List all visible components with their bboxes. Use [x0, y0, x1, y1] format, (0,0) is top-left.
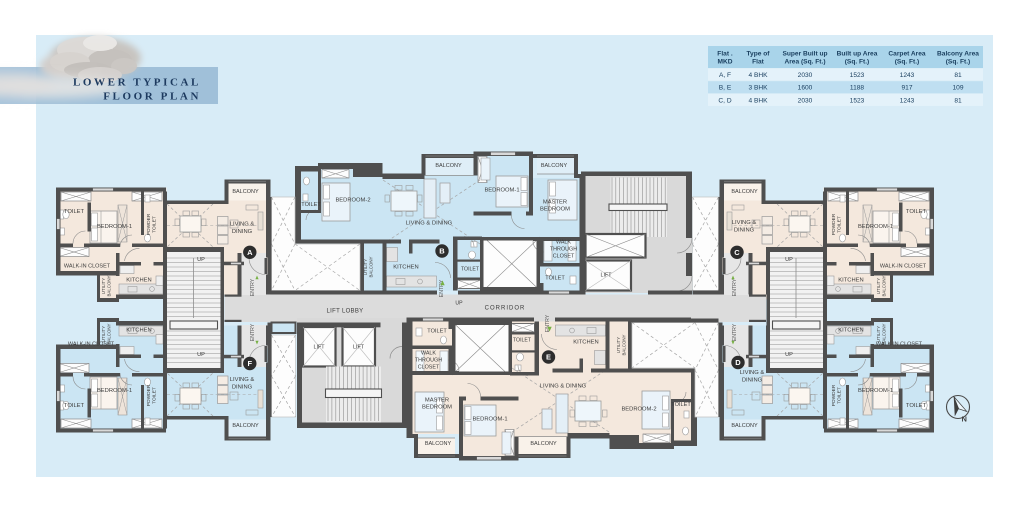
svg-text:TOILET: TOILET — [906, 403, 927, 409]
svg-text:(Sq. Ft.): (Sq. Ft.) — [946, 59, 971, 66]
svg-text:KITCHEN: KITCHEN — [838, 278, 863, 284]
svg-text:BALCONY: BALCONY — [622, 334, 627, 355]
svg-text:BALCONY: BALCONY — [369, 256, 374, 277]
svg-text:BEDROOM-2: BEDROOM-2 — [621, 407, 656, 413]
svg-text:A, F: A, F — [719, 72, 731, 79]
svg-text:WALK: WALK — [556, 240, 571, 246]
svg-text:LIVING &: LIVING & — [732, 220, 757, 226]
svg-text:109: 109 — [952, 85, 963, 92]
svg-text:BEDROOM-2: BEDROOM-2 — [335, 198, 370, 204]
svg-text:LIVING &: LIVING & — [230, 222, 255, 228]
svg-text:MASTER: MASTER — [425, 398, 449, 404]
svg-text:TOILET: TOILET — [301, 202, 321, 208]
svg-text:WALK: WALK — [421, 351, 436, 357]
svg-text:POWDER: POWDER — [831, 213, 837, 235]
svg-text:BALCONY: BALCONY — [882, 323, 887, 344]
svg-text:BALCONY: BALCONY — [107, 323, 112, 344]
svg-text:UP: UP — [197, 352, 205, 358]
svg-text:TOILET: TOILET — [152, 387, 158, 404]
svg-text:BALCONY: BALCONY — [731, 189, 758, 195]
svg-text:BEDROOM: BEDROOM — [540, 207, 570, 213]
svg-text:BALCONY: BALCONY — [232, 423, 259, 429]
svg-text:BEDROOM-1: BEDROOM-1 — [484, 188, 519, 194]
svg-text:Type of: Type of — [747, 51, 771, 58]
svg-text:1243: 1243 — [900, 97, 915, 104]
svg-text:Super Built up: Super Built up — [782, 51, 827, 58]
svg-text:TOILET: TOILET — [837, 387, 843, 404]
svg-text:LIVING &: LIVING & — [740, 370, 765, 376]
svg-text:TOILET: TOILET — [906, 209, 927, 215]
svg-text:LIFT: LIFT — [353, 345, 365, 351]
svg-text:ENTRY: ENTRY — [732, 278, 738, 296]
svg-text:TOILET: TOILET — [545, 276, 565, 282]
svg-text:4 BHK: 4 BHK — [748, 72, 768, 79]
svg-text:TOILET: TOILET — [837, 216, 843, 233]
svg-text:UP: UP — [197, 257, 205, 263]
svg-text:BEDROOM: BEDROOM — [422, 405, 452, 411]
svg-text:81: 81 — [954, 97, 962, 104]
svg-text:B, E: B, E — [719, 85, 732, 92]
svg-text:F: F — [248, 359, 253, 368]
svg-text:TOILET: TOILET — [427, 329, 447, 335]
svg-text:BEDROOM-1: BEDROOM-1 — [97, 224, 132, 230]
svg-text:Built up Area: Built up Area — [837, 51, 878, 58]
svg-text:WALK-IN CLOSET: WALK-IN CLOSET — [64, 263, 111, 269]
svg-text:POWDER: POWDER — [146, 213, 152, 235]
svg-text:MASTER: MASTER — [543, 200, 567, 206]
svg-text:TOILET: TOILET — [513, 338, 532, 344]
svg-text:BEDROOM-1: BEDROOM-1 — [97, 388, 132, 394]
svg-text:(Sq. Ft.): (Sq. Ft.) — [845, 59, 870, 66]
svg-text:A: A — [247, 248, 253, 257]
svg-text:UTILITY: UTILITY — [101, 326, 106, 342]
svg-text:4 BHK: 4 BHK — [748, 97, 768, 104]
svg-text:LIFT LOBBY: LIFT LOBBY — [327, 309, 364, 315]
svg-text:POWDER: POWDER — [146, 384, 152, 406]
svg-text:BEDROOM-1: BEDROOM-1 — [472, 417, 507, 423]
svg-text:LIVING & DINING: LIVING & DINING — [406, 221, 453, 227]
svg-text:KITCHEN: KITCHEN — [126, 328, 151, 334]
svg-text:KITCHEN: KITCHEN — [126, 278, 151, 284]
svg-text:DINING: DINING — [734, 227, 755, 233]
svg-text:ENTRY: ENTRY — [732, 323, 738, 341]
svg-text:UTILITY: UTILITY — [363, 259, 368, 275]
svg-text:BALCONY: BALCONY — [541, 163, 568, 169]
svg-text:Carpet Area: Carpet Area — [888, 51, 925, 58]
svg-text:TOILET: TOILET — [64, 403, 85, 409]
svg-text:917: 917 — [901, 85, 912, 92]
svg-text:KITCHEN: KITCHEN — [838, 328, 863, 334]
svg-text:UP: UP — [455, 301, 463, 307]
svg-text:KITCHEN: KITCHEN — [573, 340, 598, 346]
svg-text:LOWER TYPICAL: LOWER TYPICAL — [73, 77, 201, 89]
svg-text:BALCONY: BALCONY — [731, 423, 758, 429]
svg-text:BALCONY: BALCONY — [425, 441, 452, 447]
svg-text:D: D — [735, 358, 741, 367]
svg-text:C: C — [734, 248, 740, 257]
svg-text:UP: UP — [785, 257, 793, 263]
svg-text:2030: 2030 — [798, 97, 813, 104]
svg-text:Balcony Area: Balcony Area — [937, 51, 979, 58]
svg-text:1600: 1600 — [798, 85, 813, 92]
svg-text:ENTRY: ENTRY — [250, 323, 256, 341]
svg-text:DINING: DINING — [232, 385, 253, 391]
svg-text:B: B — [439, 247, 445, 256]
svg-text:TOILET: TOILET — [671, 402, 691, 408]
svg-text:TOILET: TOILET — [152, 216, 158, 233]
svg-text:1523: 1523 — [850, 97, 865, 104]
svg-text:BEDROOM-1: BEDROOM-1 — [858, 224, 893, 230]
svg-text:C, D: C, D — [718, 97, 731, 104]
svg-text:CORRIDOR: CORRIDOR — [485, 306, 526, 312]
svg-text:LIVING &: LIVING & — [230, 377, 255, 383]
svg-text:ENTRY: ENTRY — [250, 278, 256, 296]
svg-text:POWDER: POWDER — [831, 384, 837, 406]
svg-text:WALK-IN CLOSET: WALK-IN CLOSET — [880, 263, 927, 269]
svg-text:(Sq. Ft.): (Sq. Ft.) — [895, 59, 920, 66]
svg-text:1188: 1188 — [850, 85, 865, 92]
svg-text:DINING: DINING — [232, 229, 253, 235]
svg-text:81: 81 — [954, 72, 962, 79]
svg-text:BALCONY: BALCONY — [107, 275, 112, 296]
svg-text:TOILET: TOILET — [64, 209, 85, 215]
svg-text:TOILET: TOILET — [461, 267, 480, 273]
svg-text:E: E — [546, 353, 551, 362]
svg-text:Flat: Flat — [752, 59, 765, 66]
svg-text:LIFT: LIFT — [600, 273, 612, 279]
svg-text:BEDROOM-1: BEDROOM-1 — [858, 388, 893, 394]
svg-text:3 BHK: 3 BHK — [748, 85, 768, 92]
svg-text:THROUGH: THROUGH — [415, 358, 442, 364]
svg-text:LIFT: LIFT — [313, 345, 325, 351]
svg-text:UTILITY: UTILITY — [101, 278, 106, 294]
svg-text:1243: 1243 — [900, 72, 915, 79]
svg-text:BALCONY: BALCONY — [232, 189, 259, 195]
svg-text:CLOSET: CLOSET — [553, 254, 575, 260]
svg-text:Area (Sq. Ft.): Area (Sq. Ft.) — [784, 59, 825, 66]
svg-text:BALCONY: BALCONY — [882, 275, 887, 296]
svg-text:KITCHEN: KITCHEN — [393, 265, 418, 271]
svg-text:DINING: DINING — [742, 377, 763, 383]
svg-text:BALCONY: BALCONY — [530, 441, 557, 447]
svg-text:UP: UP — [785, 352, 793, 358]
svg-text:1523: 1523 — [850, 72, 865, 79]
svg-text:BALCONY: BALCONY — [435, 163, 462, 169]
svg-text:UTILITY: UTILITY — [876, 278, 881, 294]
svg-text:THROUGH: THROUGH — [550, 247, 577, 253]
svg-text:LIVING & DINING: LIVING & DINING — [540, 384, 587, 390]
svg-text:CLOSET: CLOSET — [418, 365, 440, 371]
svg-text:N: N — [962, 415, 967, 424]
svg-text:UTILITY: UTILITY — [876, 326, 881, 342]
svg-text:UTILITY: UTILITY — [616, 337, 621, 353]
svg-text:MKD: MKD — [717, 59, 732, 66]
svg-text:FLOOR PLAN: FLOOR PLAN — [103, 91, 201, 103]
svg-text:2030: 2030 — [798, 72, 813, 79]
svg-text:Flat .: Flat . — [717, 51, 733, 58]
